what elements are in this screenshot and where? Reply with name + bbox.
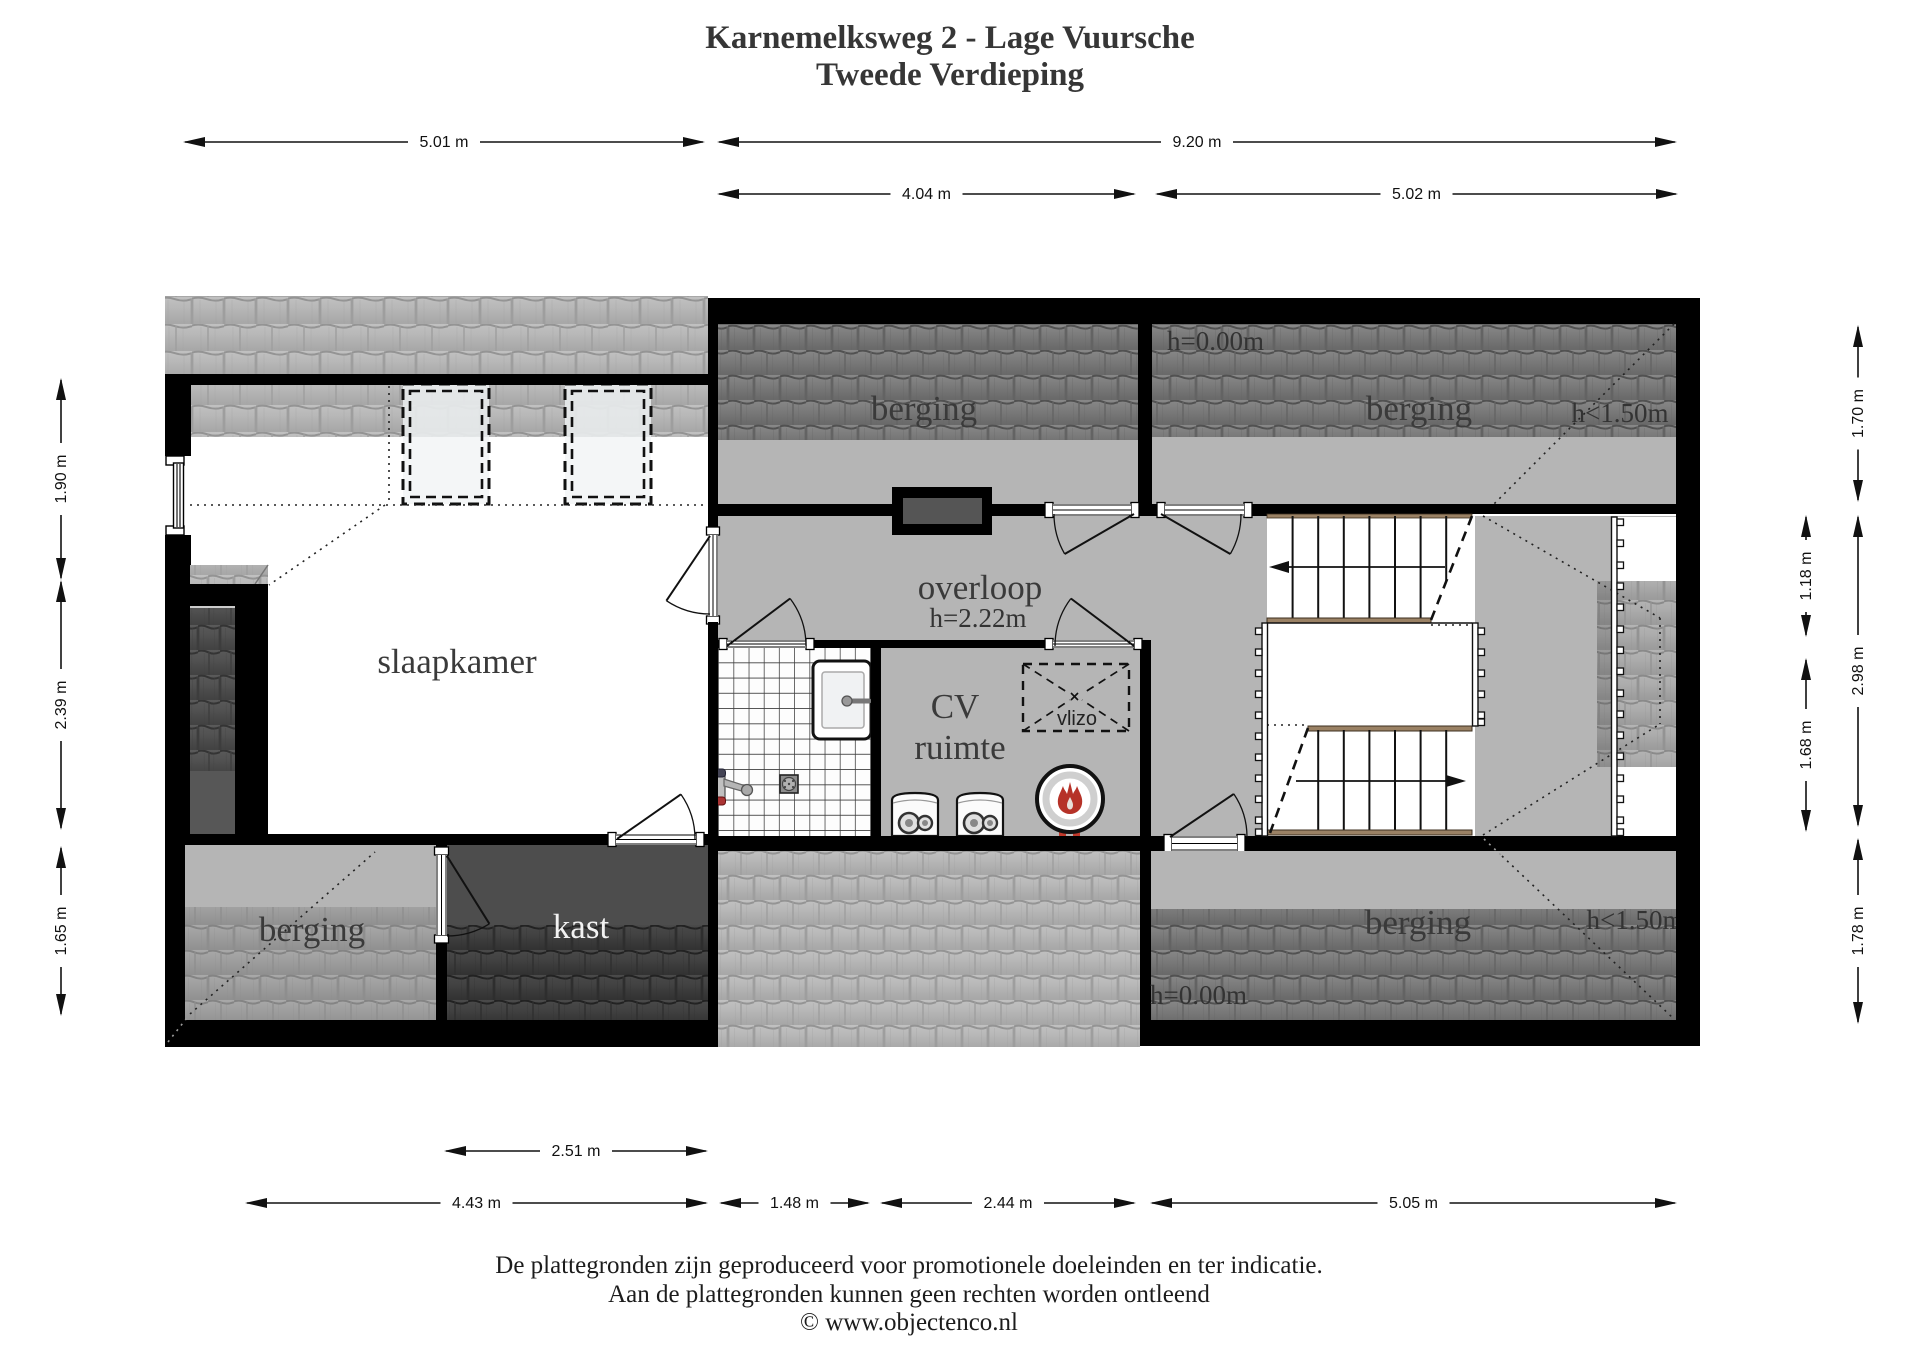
svg-text:1.70 m: 1.70 m: [1850, 389, 1867, 438]
svg-text:h=0.00m: h=0.00m: [1150, 980, 1247, 1010]
svg-text:slaapkamer: slaapkamer: [377, 642, 537, 681]
svg-text:overloop: overloop: [918, 568, 1042, 607]
svg-text:2.44 m: 2.44 m: [984, 1195, 1033, 1212]
svg-text:5.02 m: 5.02 m: [1392, 186, 1441, 203]
svg-text:4.43 m: 4.43 m: [452, 1195, 501, 1212]
svg-text:berging: berging: [259, 910, 365, 949]
svg-text:1.68 m: 1.68 m: [1798, 721, 1815, 770]
svg-text:1.65 m: 1.65 m: [53, 907, 70, 956]
svg-text:5.05 m: 5.05 m: [1389, 1195, 1438, 1212]
svg-text:2.51 m: 2.51 m: [552, 1143, 601, 1160]
svg-text:berging: berging: [1366, 389, 1472, 428]
svg-text:Tweede Verdieping: Tweede Verdieping: [816, 57, 1084, 93]
svg-text:berging: berging: [1365, 903, 1471, 942]
svg-text:h<1.50m: h<1.50m: [1587, 905, 1684, 935]
svg-text:1.18 m: 1.18 m: [1798, 552, 1815, 601]
svg-text:h<1.50m: h<1.50m: [1572, 398, 1669, 428]
svg-text:1.48 m: 1.48 m: [770, 1195, 819, 1212]
svg-text:9.20 m: 9.20 m: [1173, 134, 1222, 151]
svg-text:2.39 m: 2.39 m: [53, 681, 70, 730]
svg-text:vlizo: vlizo: [1057, 708, 1097, 730]
svg-text:h=0.00m: h=0.00m: [1167, 326, 1264, 356]
svg-text:1.78 m: 1.78 m: [1850, 907, 1867, 956]
svg-text:kast: kast: [553, 907, 610, 946]
svg-text:1.90 m: 1.90 m: [53, 455, 70, 504]
svg-text:Aan de plattegronden kunnen ge: Aan de plattegronden kunnen geen rechten…: [608, 1281, 1210, 1308]
svg-text:5.01 m: 5.01 m: [420, 134, 469, 151]
svg-text:ruimte: ruimte: [914, 728, 1005, 767]
svg-text:CV: CV: [931, 687, 980, 726]
svg-text:© www.objectenco.nl: © www.objectenco.nl: [800, 1309, 1018, 1336]
svg-text:h=2.22m: h=2.22m: [930, 603, 1027, 633]
svg-text:2.98 m: 2.98 m: [1850, 647, 1867, 696]
svg-text:4.04 m: 4.04 m: [902, 186, 951, 203]
svg-text:berging: berging: [871, 389, 977, 428]
svg-text:De plattegronden zijn geproduc: De plattegronden zijn geproduceerd voor …: [495, 1252, 1322, 1279]
svg-text:Karnemelksweg 2 - Lage Vuursch: Karnemelksweg 2 - Lage Vuursche: [705, 20, 1195, 56]
